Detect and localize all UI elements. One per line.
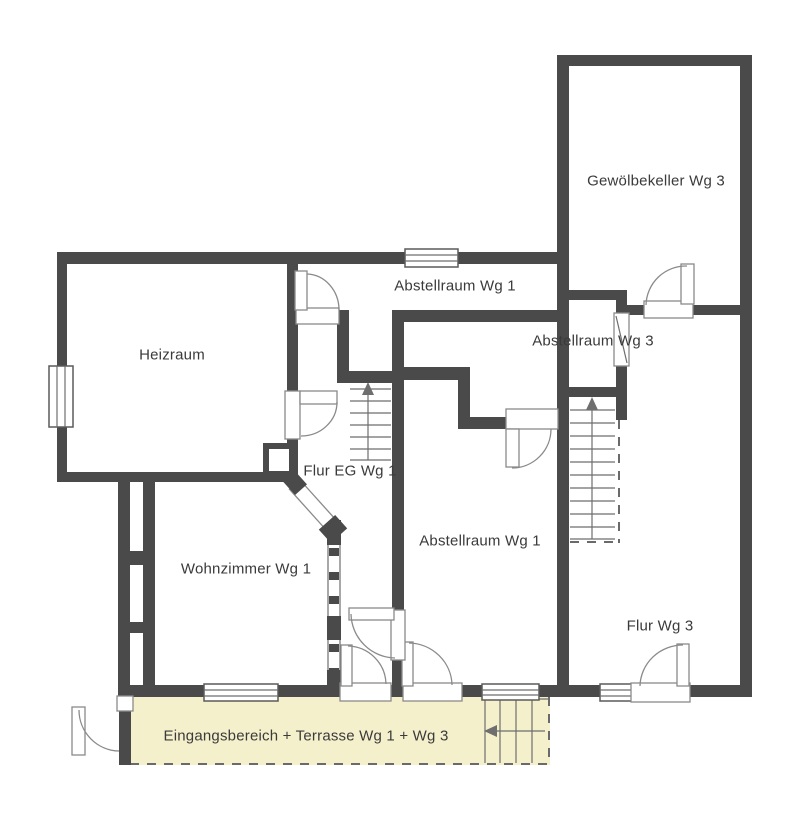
chimney-shaft-left	[118, 482, 130, 697]
wall-keller-bottom-a	[627, 305, 645, 315]
wall-stair1-top	[349, 371, 392, 383]
room-label-abstellraum-wg3: Abstellraum Wg 3	[532, 333, 654, 350]
room-label-flur-eg-wg1: Flur EG Wg 1	[303, 463, 396, 480]
wall-bottom-a	[118, 685, 205, 697]
door-terrasse-mitte	[402, 642, 462, 701]
window-top	[405, 249, 458, 267]
wall-center-l-horizontal	[404, 367, 470, 380]
wall-bottom-d	[460, 685, 483, 697]
wall-bottom-g	[687, 685, 752, 697]
window-heizraum	[49, 366, 73, 427]
window-steps-sill	[482, 684, 539, 700]
door-wohnzimmer-terrasse	[340, 645, 391, 701]
wall-center-l-vertical	[458, 380, 470, 417]
wall-center-room-top	[392, 310, 557, 322]
wall-keller-top	[557, 55, 752, 66]
wall-abstell3-top	[569, 290, 627, 300]
partition-post	[327, 616, 341, 640]
door-flur-wg3	[631, 644, 690, 702]
wall-heizraum-left-a	[57, 252, 67, 366]
wall-top-right	[458, 252, 568, 264]
room-label-abstellraum-wg1-oben: Abstellraum Wg 1	[394, 278, 516, 295]
chimney-tie-lower	[128, 622, 155, 633]
chimney-block-flue	[269, 449, 289, 471]
wall-center-l-lower	[458, 417, 508, 429]
door-heizraum	[285, 391, 337, 439]
chimney-shaft-right	[143, 482, 155, 697]
room-label-heizraum: Heizraum	[139, 347, 205, 364]
partition-post	[327, 670, 341, 687]
wall-center-vertical	[557, 55, 569, 697]
door-flur-abstellraum	[349, 608, 405, 660]
wall-bottom-e	[539, 685, 569, 697]
dashed-partition	[327, 520, 341, 687]
door-gewoelbekeller	[644, 264, 694, 318]
window-flur-wg3	[600, 684, 632, 701]
wall-heizraum-bottom	[57, 472, 298, 482]
wall-abstell3-bottom	[557, 387, 627, 397]
staircase-wg1	[350, 382, 391, 460]
wall-outer-right	[740, 55, 752, 697]
room-label-gewoelbekeller: Gewölbekeller Wg 3	[587, 173, 725, 190]
wall-keller-bottom-b	[692, 305, 740, 315]
room-label-flur-wg3: Flur Wg 3	[627, 618, 694, 635]
floor-plan: Gewölbekeller Wg 3 Abstellraum Wg 1 Heiz…	[0, 0, 806, 830]
door-abstellraum-wg1-oben	[295, 271, 339, 324]
door-abstellraum-mitte	[506, 409, 558, 468]
chimney-tie-upper	[128, 551, 155, 565]
room-label-eingang-terrasse: Eingangsbereich + Terrasse Wg 1 + Wg 3	[164, 728, 449, 745]
room-label-abstellraum-wg1-mitte: Abstellraum Wg 1	[419, 533, 541, 550]
up-arrow-head	[586, 397, 598, 410]
wall-center-room-left-a	[392, 310, 404, 612]
wall-bottom-f	[569, 685, 601, 697]
terrace-left-post	[119, 711, 131, 765]
wall-top-left	[57, 252, 405, 264]
wall-bottom-b	[278, 685, 341, 697]
window-wohnzimmer	[204, 684, 278, 701]
floor-plan-drawing	[0, 0, 806, 830]
room-label-wohnzimmer-wg1: Wohnzimmer Wg 1	[181, 561, 311, 578]
staircase-wg3	[570, 397, 619, 543]
